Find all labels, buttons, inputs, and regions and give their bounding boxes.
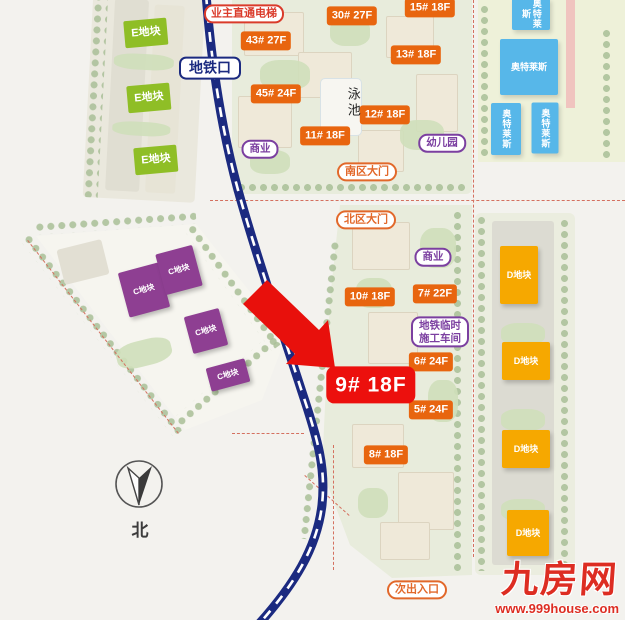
- watermark-brand: 九房网: [493, 549, 621, 603]
- boundary-line-vertical: [473, 0, 474, 557]
- building-label-10: 10# 18F: [345, 287, 395, 306]
- outlets-building-2: 奥特莱斯: [500, 39, 558, 95]
- plot-label-d-2: D地块: [502, 342, 550, 380]
- compass: 北: [100, 448, 180, 538]
- commercial-label-1: 商业: [242, 140, 279, 159]
- kindergarten-label: 幼儿园: [418, 134, 466, 153]
- metro-workshop-label: 地铁临时 施工车间: [411, 316, 469, 347]
- pool-label: 泳池: [345, 87, 361, 119]
- compass-rose-icon: [100, 448, 180, 514]
- plot-label-d-1: D地块: [500, 246, 538, 304]
- plot-label-e-2: E地块: [126, 83, 172, 114]
- secondary-entrance-label: 次出入口: [387, 580, 447, 599]
- plot-label-e-3: E地块: [133, 145, 179, 176]
- building-label-43: 43# 27F: [241, 31, 291, 50]
- plot-label-d-3: D地块: [502, 430, 550, 468]
- elevator-label: 业主直通电梯: [204, 4, 284, 23]
- building-label-45: 45# 24F: [251, 84, 301, 103]
- outlets-building-3: 奥特莱斯: [491, 103, 521, 155]
- building-label-5: 5# 24F: [409, 400, 453, 419]
- building-label-30: 30# 27F: [327, 6, 377, 25]
- building-label-8: 8# 18F: [364, 445, 408, 464]
- watermark: 九房网 www.999house.com: [495, 549, 619, 616]
- building-label-15: 15# 18F: [405, 0, 455, 18]
- boundary-line-horizontal: [210, 200, 625, 201]
- building-label-11: 11# 18F: [300, 126, 350, 145]
- site-plan-map: 15# 18F30# 27F43# 27F13# 18F45# 24F12# 1…: [0, 0, 625, 620]
- gate-label-north: 北区大门: [336, 210, 396, 229]
- commercial-label-2: 商业: [415, 248, 452, 267]
- gate-label-south: 南区大门: [337, 162, 397, 181]
- metro-entrance-label: 地铁口: [179, 57, 241, 80]
- outlets-building-1: 奥特莱斯: [512, 0, 550, 30]
- building-label-13: 13# 18F: [391, 45, 441, 64]
- compass-north-label: 北: [100, 516, 180, 541]
- building-label-6: 6# 24F: [409, 352, 453, 371]
- outlets-building-4: 奥特莱斯: [532, 103, 559, 154]
- plot-label-e-1: E地块: [123, 18, 169, 49]
- building-label-12: 12# 18F: [360, 105, 410, 124]
- building-label-7: 7# 22F: [413, 284, 457, 303]
- highlight-label-9: 9# 18F: [326, 366, 415, 403]
- watermark-url: www.999house.com: [495, 601, 619, 616]
